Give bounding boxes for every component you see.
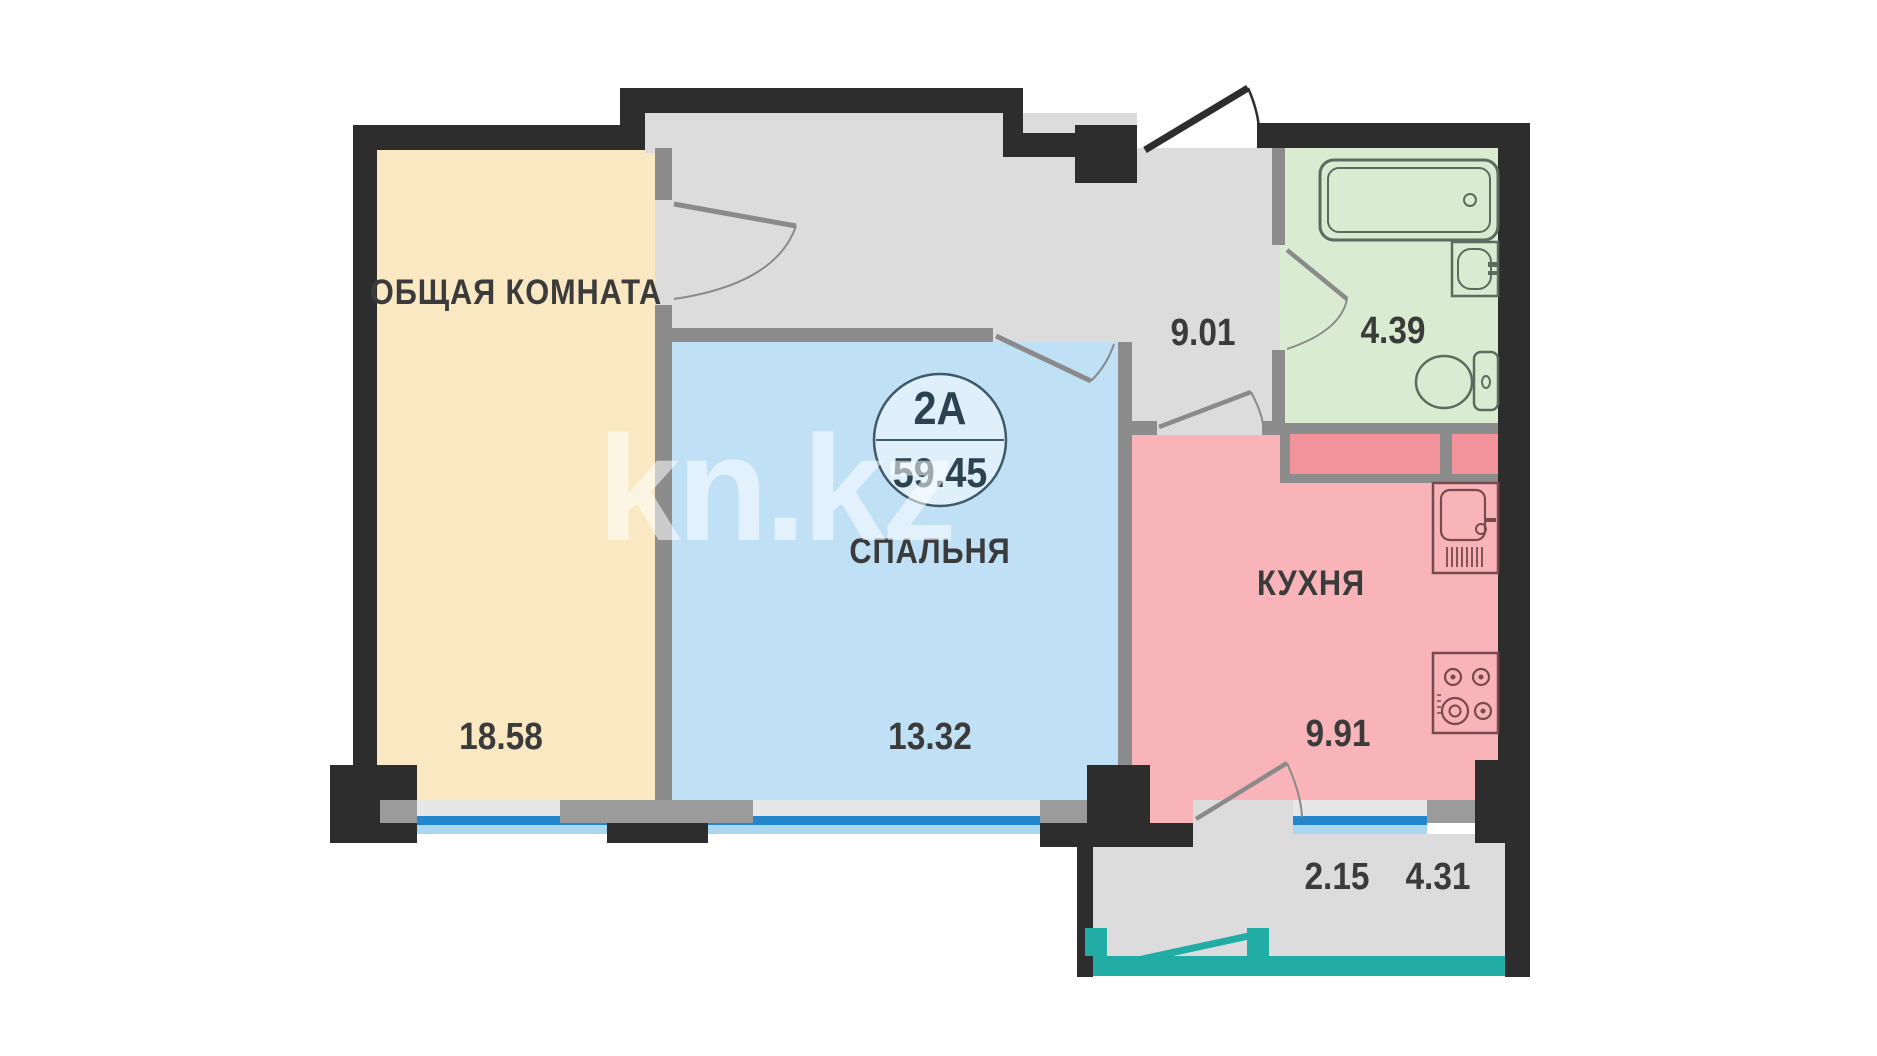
window-glass-light [417,825,607,834]
window-glass [708,816,1040,825]
wall-left [353,125,377,765]
window-sill [708,800,1040,816]
sill-block [607,800,708,823]
partition-bedroom-right [1118,342,1132,800]
vent-shaft-band [1280,423,1530,483]
window-glass-light [1293,825,1427,834]
balcony-wall-left [1077,843,1093,977]
room-hallway-floor [1118,148,1280,435]
wall-window-pier [607,823,708,843]
wall-t-pier [1040,823,1193,847]
wall-top [620,88,1023,113]
sill-block [380,800,417,823]
label-bedroom-area: 13.32 [888,715,972,757]
partition-bathroom-left [1272,148,1285,245]
wall-right [1498,123,1530,843]
stove-burner-icon [1451,675,1456,680]
wall-corner-pier [1475,760,1530,843]
kitchen-faucet-icon [1486,518,1496,522]
label-balcony-area-full: 4.31 [1405,855,1470,897]
balcony-door-threshold [1193,800,1293,834]
stove-burner-icon [1481,709,1486,714]
room-kitchen-floor [1150,800,1193,823]
vent-shaft [1290,434,1440,474]
label-hallway-area: 9.01 [1170,311,1235,353]
room-hallway-floor [645,113,672,153]
window-glass [1293,816,1427,825]
label-bathroom-area: 4.39 [1360,309,1425,351]
label-living-name: ОБЩАЯ КОМНАТА [370,272,662,311]
partition-bathroom-left [1272,350,1285,423]
washbasin-faucet-icon [1488,271,1498,275]
sill-block [708,800,753,823]
window-sill [1293,800,1427,816]
room-bathroom-floor [1280,148,1498,423]
label-living-area: 18.58 [459,715,543,757]
wall-top [1257,123,1530,148]
stove-burner-icon [1479,675,1484,680]
wall-top [1003,133,1077,157]
partition-bedroom-top [672,328,993,342]
sill-block [1040,800,1087,823]
label-kitchen-area: 9.91 [1305,712,1370,754]
balcony-wall-right [1505,843,1530,977]
watermark-text: kn.kz [597,404,952,572]
room-hallway-floor [1003,157,1137,342]
vent-shaft [1452,434,1498,474]
floor-plan-page: 2А 59.45 ОБЩАЯ КОМНАТА 18.58 СПАЛЬНЯ 13.… [0,0,1877,1056]
watermark: kn.kz [597,404,952,572]
room-balcony-floor [1093,834,1505,962]
partition-kitchen-top [1132,421,1157,435]
partition-kitchen-top [1262,421,1280,435]
label-balcony-area-coef: 2.15 [1304,855,1369,897]
sill-block [560,800,607,823]
sill-block [1427,800,1475,823]
floor-plan-svg: 2А 59.45 ОБЩАЯ КОМНАТА 18.58 СПАЛЬНЯ 13.… [0,0,1877,1056]
wall-top [353,125,625,150]
entry-pillar [1075,125,1137,183]
window-glass-light [708,825,1040,834]
label-kitchen-name: КУХНЯ [1257,563,1365,602]
washbasin-faucet-icon [1488,262,1498,267]
